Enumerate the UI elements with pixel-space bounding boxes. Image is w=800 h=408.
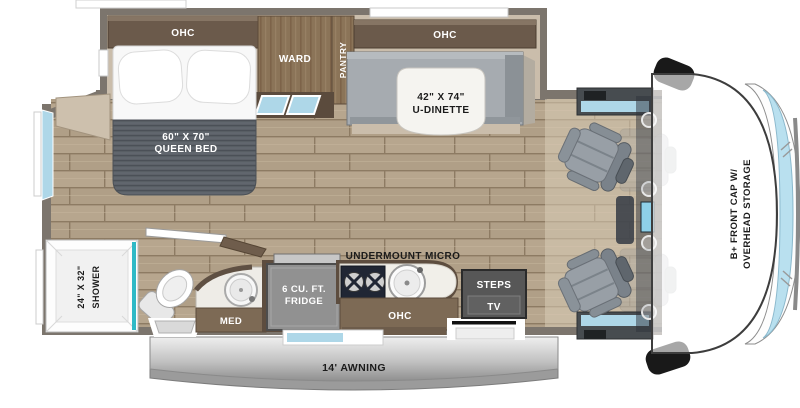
- shower: 24" X 32" SHOWER: [36, 240, 138, 332]
- micro-label: UNDERMOUNT MICRO: [346, 251, 461, 262]
- entry-step: [456, 328, 514, 339]
- fridge-size-label: 6 CU. FT.: [282, 284, 326, 295]
- bed-name-label: QUEEN BED: [154, 144, 217, 155]
- pillow-right: [186, 49, 252, 104]
- u-dinette: 42" X 74" U-DINETTE: [347, 52, 535, 135]
- skylight-pane-1: [256, 96, 289, 114]
- dinette-name-label: U-DINETTE: [413, 105, 470, 116]
- shower-glass: [132, 242, 136, 330]
- tv-label: TV: [487, 302, 501, 313]
- rv-floorplan-canvas: 14' AWNING OHC WARD PANTRY OHC: [0, 0, 800, 408]
- shower-wall-window: [36, 250, 43, 324]
- burner-1: [345, 273, 364, 292]
- floorplan-svg: 14' AWNING OHC WARD PANTRY OHC: [0, 0, 800, 408]
- bed-size-label: 60" X 70": [162, 132, 210, 143]
- wardrobe: WARD: [258, 16, 332, 98]
- bedroom-skylight-panes: [256, 92, 334, 118]
- fridge: 6 CU. FT. FRIDGE: [262, 254, 346, 332]
- kitchen-faucet: [417, 267, 423, 273]
- kitchen: UNDERMOUNT MICRO OHC: [336, 251, 460, 335]
- queen-bed: 60" X 70" QUEEN BED: [113, 46, 256, 195]
- entry-door: [447, 318, 525, 340]
- med-label: MED: [220, 316, 242, 327]
- shower-name-label: SHOWER: [91, 265, 101, 308]
- skylight-pane-2: [287, 96, 320, 114]
- steps-tv-unit: STEPS TV: [462, 270, 526, 318]
- center-console: [616, 196, 634, 244]
- steps-label: STEPS: [477, 280, 512, 291]
- bed-ohc-cabinet: OHC: [108, 16, 258, 48]
- dinette-window: [370, 8, 508, 17]
- bedroom-side-window: [99, 50, 108, 76]
- burner-2: [366, 273, 385, 292]
- fridge-name-label: FRIDGE: [285, 296, 323, 307]
- front-cap-label-1: B+ FRONT CAP W/: [729, 169, 740, 260]
- toilet-step: [148, 318, 202, 337]
- entry-threshold: [452, 321, 516, 325]
- awning-label: 14' AWNING: [322, 362, 386, 374]
- dinette-ohc-label: OHC: [433, 30, 456, 41]
- shower-size-label: 24" X 32": [76, 265, 86, 308]
- front-cap-overlay: B+ FRONT CAP W/ OVERHEAD STORAGE: [652, 74, 777, 353]
- ward-label: WARD: [279, 54, 311, 65]
- bedroom-roof-window: [76, 0, 186, 8]
- vanity-faucet: [249, 296, 255, 302]
- rear-window-glass: [42, 110, 53, 200]
- front-cap-label-2: OVERHEAD STORAGE: [742, 159, 753, 269]
- bed-ohc-label: OHC: [171, 28, 194, 39]
- kitchen-ohc-label: OHC: [388, 311, 411, 322]
- galley-window: [283, 330, 383, 345]
- dinette-shadow: [523, 55, 535, 125]
- pillow-left: [117, 49, 183, 105]
- dinette-ohc-cabinet: OHC: [354, 20, 536, 48]
- rear-window-outer: [34, 112, 41, 196]
- dinette-size-label: 42" X 74": [417, 92, 465, 103]
